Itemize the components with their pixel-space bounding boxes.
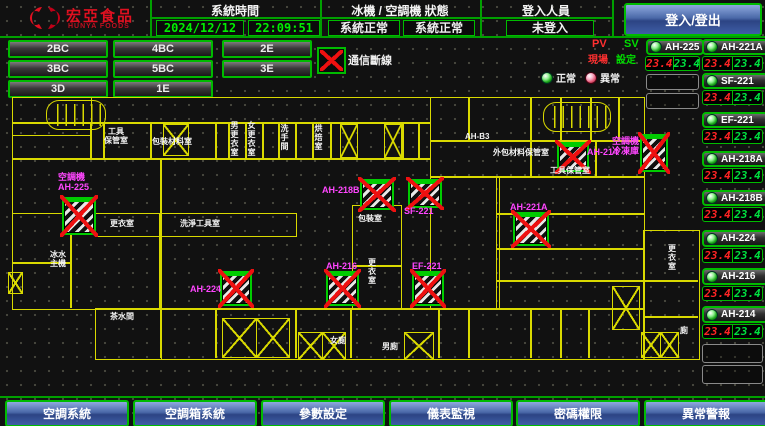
unit-values-ah-214: 23.4 23.4	[702, 324, 763, 339]
unit-button-ah-218b[interactable]: AH-218B	[702, 190, 765, 206]
unit-label: AH-218B	[721, 193, 763, 204]
ahu-device-ah-225[interactable]	[62, 197, 96, 235]
unit-values-sf-221: 23.4 23.4	[702, 90, 763, 105]
room-label: 茶水間	[110, 312, 134, 321]
ahu-device-ah-224[interactable]	[220, 271, 252, 306]
device-label-ah-221a: AH-221A	[510, 202, 548, 212]
header-sep-4	[612, 0, 614, 36]
unit-label: AH-216	[721, 271, 755, 282]
unit-values-ef-221: 23.4 23.4	[702, 129, 763, 144]
login-status-value: 未登入	[506, 20, 594, 36]
floor-button-1e[interactable]: 1E	[113, 80, 213, 98]
sv-value: 23.4	[733, 91, 762, 104]
room-label: 更 衣 室	[668, 244, 676, 271]
wall	[530, 97, 532, 140]
unit-values-ah-225: 23.4 23.4	[645, 56, 700, 71]
chiller-status-value: 系統正常	[328, 20, 400, 36]
wall	[160, 310, 162, 358]
room-label: 女廁	[330, 336, 346, 345]
logo-subtext: HUNYA FOODS	[68, 23, 130, 30]
room-label: 包裝室	[358, 214, 382, 223]
empty-slot	[702, 365, 763, 384]
stairs-icon	[543, 102, 611, 132]
room-label: 工具 保管室	[104, 127, 128, 145]
nav-ahu-system-button[interactable]: 空調箱系統	[133, 400, 257, 426]
unit-label: EF-221	[721, 115, 754, 126]
room-label: 廁	[680, 326, 688, 335]
empty-slot	[646, 74, 699, 90]
sv-value: 23.4	[674, 57, 701, 70]
login-logout-button[interactable]: 登入/登出	[624, 3, 762, 36]
nav-meter-monitor-button[interactable]: 儀表監視	[389, 400, 513, 426]
floor-button-4bc[interactable]: 4BC	[113, 40, 213, 58]
room-label: 工具保管室	[550, 166, 590, 175]
unit-values-ah-216: 23.4 23.4	[702, 286, 763, 301]
unit-button-ah-216[interactable]: AH-216	[702, 268, 765, 285]
unit-label: AH-225	[665, 42, 699, 53]
elevator-icon	[222, 318, 290, 358]
pv-value: 23.4	[703, 287, 733, 300]
wall	[402, 122, 404, 158]
hmi-screen: 宏亞食品 HUNYA FOODS 系統時間 2024/12/12 22:09:5…	[0, 0, 765, 426]
wall	[12, 158, 430, 160]
shaft-icon	[404, 332, 434, 360]
abnormal-label: 異常	[600, 70, 620, 85]
floor-button-3e[interactable]: 3E	[222, 60, 312, 78]
wall	[588, 310, 590, 358]
pv-value: 23.4	[703, 130, 733, 143]
nav-parameter-button[interactable]: 參數設定	[261, 400, 385, 426]
comm-error-label: 通信斷線	[348, 52, 392, 68]
wall	[160, 158, 162, 308]
wall	[468, 310, 470, 358]
unit-button-ah-221a[interactable]: AH-221A	[702, 39, 765, 55]
pv-label: PV	[592, 38, 607, 50]
pv-name-label: 現場	[588, 51, 608, 66]
ahu-device-ah-216[interactable]	[326, 271, 359, 306]
wall	[215, 310, 217, 358]
unit-led-icon	[650, 41, 662, 53]
sv-value: 23.4	[733, 325, 762, 338]
unit-led-icon	[706, 271, 718, 283]
floor-button-3d[interactable]: 3D	[8, 80, 108, 98]
unit-led-icon	[706, 192, 718, 204]
system-time-label: 系統時間	[150, 2, 320, 19]
sv-value: 23.4	[733, 208, 762, 221]
nav-divider	[0, 396, 765, 398]
device-label-sf-221: SF-221	[404, 206, 434, 216]
plan-room	[496, 248, 645, 282]
room-label: 男廁	[382, 342, 398, 351]
wall	[530, 310, 532, 358]
shaft-icon	[340, 124, 358, 158]
system-time-value: 22:09:51	[248, 20, 320, 36]
room-label: 烘焙室	[314, 124, 323, 151]
pv-value: 23.4	[646, 57, 674, 70]
plan-bottom-band	[95, 308, 645, 360]
wall	[618, 97, 620, 140]
room-label: 女更衣室	[247, 121, 256, 157]
ahu-status-value: 系統正常	[403, 20, 475, 36]
wall	[595, 140, 597, 176]
unit-button-ah-214[interactable]: AH-214	[702, 306, 765, 323]
fan-device-sf-221[interactable]	[408, 179, 442, 208]
wall	[350, 310, 352, 358]
unit-led-icon	[706, 41, 718, 53]
sv-value: 23.4	[733, 169, 762, 182]
device-label-ah-225: 空調機 AH-225	[58, 172, 89, 192]
nav-password-button[interactable]: 密碼權限	[516, 400, 640, 426]
wall	[438, 310, 440, 358]
unit-led-icon	[706, 75, 718, 87]
shaft-icon	[384, 124, 402, 158]
unit-label: AH-221A	[721, 42, 763, 53]
comm-error-icon	[317, 47, 346, 74]
wall	[295, 310, 297, 358]
normal-label: 正常	[556, 70, 576, 85]
normal-led-icon	[541, 72, 553, 84]
shaft-icon	[8, 272, 23, 294]
sv-value: 23.4	[733, 249, 762, 262]
device-label-ef-221: EF-221	[412, 261, 442, 271]
ahu-device-ah-218b[interactable]	[360, 179, 394, 210]
unit-values-ah-224: 23.4 23.4	[702, 248, 763, 263]
wall	[262, 122, 264, 158]
unit-button-ef-221[interactable]: EF-221	[702, 112, 765, 128]
sv-name-label: 設定	[616, 51, 636, 66]
stairs-icon	[46, 100, 106, 130]
system-date-value: 2024/12/12	[156, 20, 244, 36]
pv-value: 23.4	[703, 249, 733, 262]
wall	[70, 235, 72, 308]
pv-value: 23.4	[703, 91, 733, 104]
sv-label: SV	[624, 38, 639, 50]
floor-button-2bc[interactable]: 2BC	[8, 40, 108, 58]
room-label: 男更衣室	[230, 121, 239, 157]
unit-label: AH-218A	[721, 154, 763, 165]
pv-value: 23.4	[703, 169, 733, 182]
unit-button-ah-218a[interactable]: AH-218A	[702, 151, 765, 167]
sv-value: 23.4	[733, 287, 762, 300]
fan-device-ef-221[interactable]	[412, 271, 444, 306]
unit-led-icon	[706, 233, 718, 245]
room-label: 冰水 主機	[50, 250, 66, 268]
device-label-ah-224: AH-224	[190, 284, 221, 294]
wall	[643, 280, 698, 282]
machine-status-label: 冰機 / 空調機 狀態	[320, 2, 480, 19]
unit-led-icon	[706, 153, 718, 165]
abnormal-led-icon	[585, 72, 597, 84]
wall	[530, 140, 532, 176]
pv-value: 23.4	[703, 325, 733, 338]
logo-icon	[28, 3, 62, 33]
unit-button-ah-225[interactable]: AH-225	[646, 39, 704, 55]
header-divider	[0, 36, 765, 38]
empty-slot	[702, 344, 763, 363]
device-label-ah-216: AH-216	[326, 261, 357, 271]
room-label: 更衣室	[110, 219, 134, 228]
wall	[418, 122, 420, 158]
unit-values-ah-218a: 23.4 23.4	[702, 168, 763, 183]
wall	[560, 310, 562, 358]
unit-button-sf-221[interactable]: SF-221	[702, 73, 765, 89]
elevator-icon	[641, 332, 679, 358]
ahu-device-ah-221a[interactable]	[513, 212, 549, 246]
nav-ac-system-button[interactable]: 空調系統	[5, 400, 129, 426]
unit-label: AH-224	[721, 233, 755, 244]
unit-button-ah-224[interactable]: AH-224	[702, 230, 765, 247]
room-label: 更 衣 室	[368, 258, 376, 285]
sv-value: 23.4	[733, 130, 762, 143]
device-label-freezer: 空調機 冷凍庫	[612, 136, 639, 156]
ahu-device-freezer[interactable]	[640, 134, 668, 172]
unit-values-ah-221a: 23.4 23.4	[702, 56, 763, 71]
wall	[330, 122, 332, 158]
pv-value: 23.4	[703, 208, 733, 221]
empty-slot	[646, 93, 699, 109]
room-label: 洗手間	[280, 124, 289, 151]
room-label: 洗淨工具室	[180, 219, 220, 228]
wall	[643, 316, 698, 318]
room-label: 包裝材料室	[152, 137, 192, 146]
device-label-ah-218b: AH-218B	[322, 185, 360, 195]
shaft-icon	[612, 286, 640, 330]
room-label: AH-B3	[465, 132, 489, 141]
unit-label: SF-221	[721, 76, 754, 87]
login-person-label: 登入人員	[480, 2, 612, 19]
wall	[215, 122, 217, 158]
room-label: 外包材料保管室	[493, 148, 549, 157]
nav-alarm-button[interactable]: 異常警報	[644, 400, 765, 426]
wall	[295, 122, 297, 158]
floor-button-2e[interactable]: 2E	[222, 40, 312, 58]
sv-value: 23.4	[733, 57, 762, 70]
unit-values-ah-218b: 23.4 23.4	[702, 207, 763, 222]
unit-label: AH-214	[721, 309, 755, 320]
unit-led-icon	[706, 114, 718, 126]
unit-led-icon	[706, 309, 718, 321]
pv-value: 23.4	[703, 57, 733, 70]
floor-button-5bc[interactable]: 5BC	[113, 60, 213, 78]
floor-button-3bc[interactable]: 3BC	[8, 60, 108, 78]
